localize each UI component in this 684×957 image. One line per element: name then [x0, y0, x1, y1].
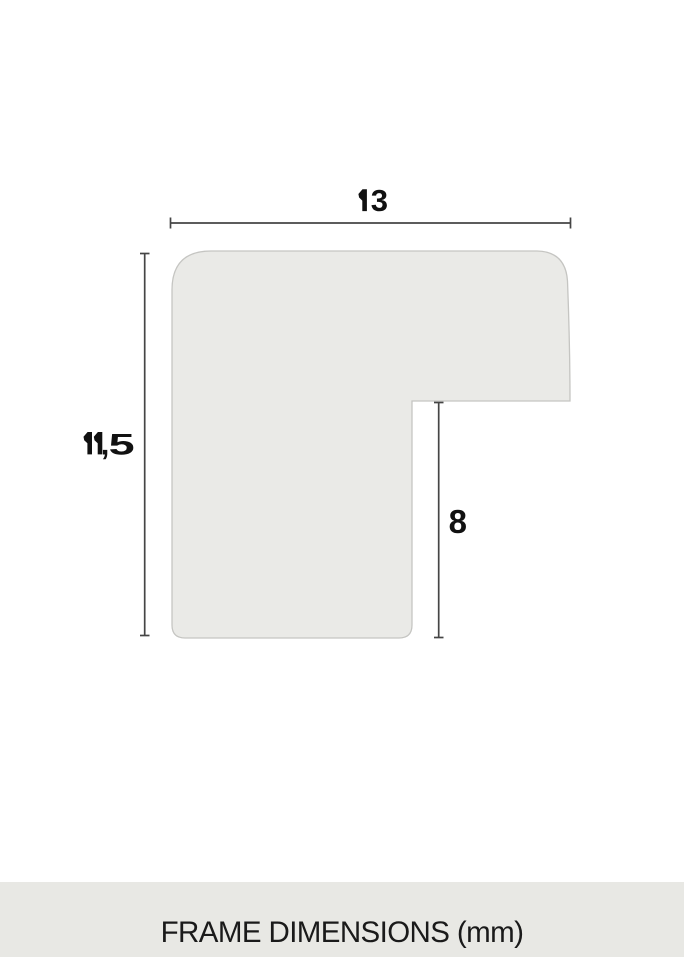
svg-text:5: 5 [109, 428, 135, 461]
svg-text:8: 8 [449, 503, 467, 540]
svg-text:3: 3 [371, 183, 388, 218]
svg-text:FRAME DIMENSIONS (mm): FRAME DIMENSIONS (mm) [161, 916, 524, 949]
